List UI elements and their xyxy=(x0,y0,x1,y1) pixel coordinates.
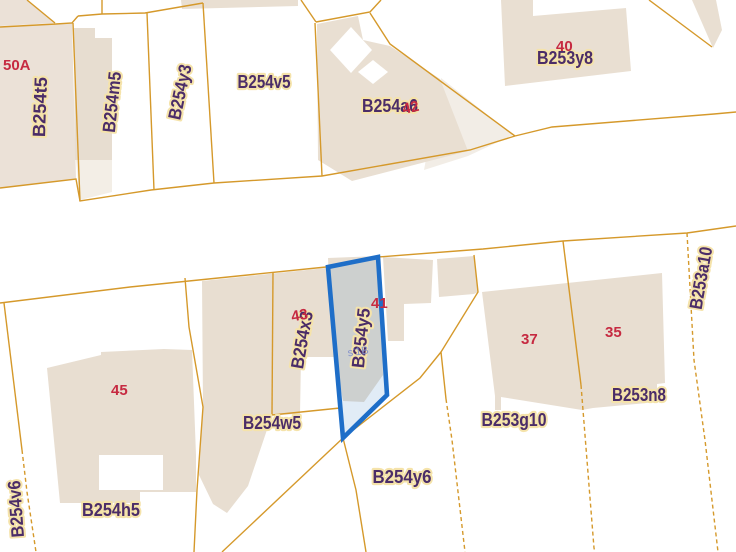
svg-text:B254y6: B254y6 xyxy=(373,467,432,487)
svg-text:B254v5: B254v5 xyxy=(238,72,291,92)
svg-text:43: 43 xyxy=(290,306,309,326)
svg-text:B254h5: B254h5 xyxy=(82,500,140,520)
svg-text:35: 35 xyxy=(605,324,622,341)
svg-text:42: 42 xyxy=(401,98,421,118)
svg-text:B254t5: B254t5 xyxy=(29,77,51,138)
svg-text:B253n8: B253n8 xyxy=(612,385,666,405)
svg-text:40: 40 xyxy=(556,38,573,55)
svg-text:B253g10: B253g10 xyxy=(482,410,547,430)
svg-text:50A: 50A xyxy=(3,57,31,74)
svg-text:45: 45 xyxy=(111,382,128,399)
svg-text:41: 41 xyxy=(371,295,388,312)
svg-text:B254v6: B254v6 xyxy=(4,480,28,538)
svg-text:37: 37 xyxy=(521,331,538,348)
svg-text:B254w5: B254w5 xyxy=(243,413,301,433)
